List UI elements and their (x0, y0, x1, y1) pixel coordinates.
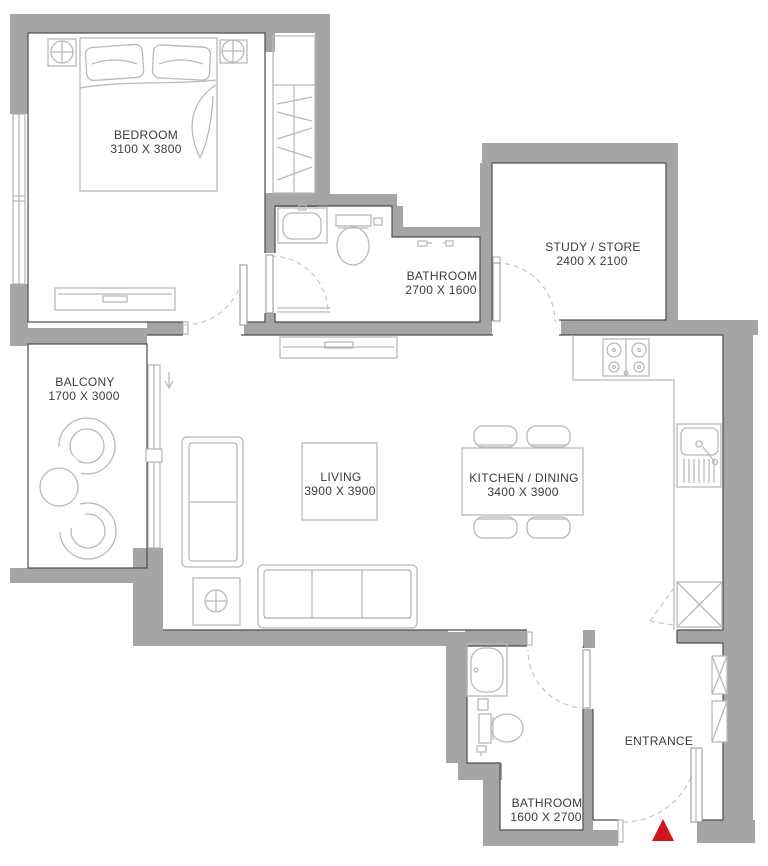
bed-symbol (80, 38, 217, 191)
kitchen-sink-symbol (677, 424, 721, 487)
kitchen-fixtures (573, 335, 722, 630)
bathroom-bottom-dims: 1600 X 2700 (510, 810, 581, 824)
floor-plan-canvas: BEDROOM 3100 X 3800 BATHROOM 2700 X 1600… (0, 0, 768, 866)
entrance-outline (593, 643, 723, 820)
bathroom-top-label: BATHROOM (407, 269, 478, 283)
utility-shaft-symbol (712, 656, 727, 694)
wardrobe-symbol (273, 36, 315, 193)
study-dims: 2400 X 2100 (556, 254, 627, 268)
direction-arrow-icon (165, 372, 173, 388)
study-door (493, 263, 555, 322)
balcony-dims: 1700 X 3000 (48, 389, 119, 403)
bathroom-bottom-fixtures (467, 644, 523, 756)
balcony-label: BALCONY (55, 375, 114, 389)
dresser-symbol (55, 288, 175, 310)
dining-chair-symbol (527, 426, 570, 447)
bathroom-top-outline (275, 206, 480, 322)
shower-mixer-icon (418, 241, 453, 246)
stove-symbol (603, 339, 649, 376)
door-thresholds (183, 253, 697, 845)
bedroom-door (184, 265, 247, 325)
bedroom-outline (28, 33, 265, 322)
bathroom-bottom-door (528, 650, 590, 708)
dining-chair-symbol (474, 517, 517, 538)
entrance-door (623, 748, 702, 822)
loveseat-symbol (182, 437, 243, 567)
floor-plan: BEDROOM 3100 X 3800 BATHROOM 2700 X 1600… (0, 0, 768, 866)
kitchen-dining-dims: 3400 X 3900 (487, 485, 558, 499)
sofa-symbol (258, 565, 417, 628)
side-table-symbol (193, 578, 240, 625)
living-furniture (182, 337, 417, 628)
entrance-label: ENTRANCE (625, 734, 693, 748)
bathroom-top-dims: 2700 X 1600 (405, 283, 476, 297)
dining-chair-symbol (527, 517, 570, 538)
balcony-sliding-door (146, 365, 162, 548)
counter-edge (573, 335, 674, 630)
open-space-outline (147, 335, 723, 643)
balcony-furniture (30, 418, 116, 559)
washing-machine-symbol (650, 582, 722, 627)
utility-shaft-symbol (712, 701, 727, 742)
sink-symbol (278, 205, 327, 243)
toilet-symbol (336, 215, 382, 265)
dining-chair-symbol (474, 426, 517, 447)
ceiling-light-icon (48, 39, 76, 66)
toilet-roll-icon (478, 699, 488, 710)
tv-unit-symbol (280, 337, 397, 358)
room-labels: BEDROOM 3100 X 3800 BATHROOM 2700 X 1600… (48, 128, 693, 824)
bathroom-bottom-label: BATHROOM (512, 796, 583, 810)
study-label: STUDY / STORE (545, 240, 640, 254)
bedroom-dims: 3100 X 3800 (110, 142, 181, 156)
bedroom-window (13, 114, 25, 284)
living-label: LIVING (320, 470, 361, 484)
shower-mixer-icon (477, 746, 486, 756)
entrance-elements (652, 656, 727, 841)
shower-screen (277, 308, 330, 312)
living-dims: 3900 X 3900 (304, 484, 375, 498)
ceiling-light-icon (220, 40, 247, 63)
bedroom-label: BEDROOM (114, 128, 178, 142)
bathtub-symbol (467, 644, 507, 696)
kitchen-dining-label: KITCHEN / DINING (469, 471, 578, 485)
balcony-table-symbol (40, 468, 78, 506)
toilet-symbol (479, 714, 523, 743)
